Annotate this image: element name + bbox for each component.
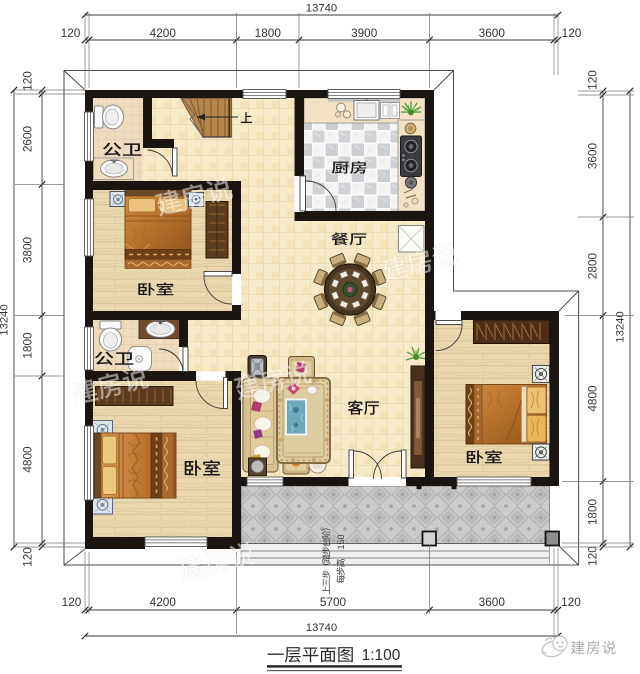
svg-text:120: 120 (21, 547, 35, 567)
svg-text:120: 120 (61, 26, 81, 40)
svg-text:1800: 1800 (21, 332, 35, 359)
svg-text:5700: 5700 (320, 595, 347, 609)
svg-text:4200: 4200 (150, 26, 177, 40)
svg-text:4200: 4200 (150, 595, 177, 609)
svg-text:120: 120 (561, 595, 581, 609)
svg-text:13740: 13740 (306, 622, 337, 634)
svg-text:1800: 1800 (255, 26, 282, 40)
svg-text:120: 120 (62, 595, 82, 609)
svg-text:4800: 4800 (21, 446, 35, 473)
svg-text:1:100: 1:100 (362, 647, 401, 664)
svg-text:3600: 3600 (479, 595, 506, 609)
svg-text:13740: 13740 (306, 3, 337, 15)
svg-text:13240: 13240 (615, 311, 627, 342)
svg-text:3600: 3600 (586, 142, 600, 169)
svg-text:3900: 3900 (351, 26, 378, 40)
svg-text:120: 120 (562, 26, 582, 40)
svg-text:2800: 2800 (586, 252, 600, 279)
svg-text:4800: 4800 (586, 385, 600, 412)
svg-text:120: 120 (586, 546, 600, 566)
svg-text:3600: 3600 (479, 26, 506, 40)
svg-text:120: 120 (586, 70, 600, 90)
svg-text:120: 120 (21, 71, 35, 91)
svg-text:3800: 3800 (21, 236, 35, 263)
svg-text:13240: 13240 (0, 304, 11, 335)
svg-text:1800: 1800 (586, 498, 600, 525)
svg-text:2600: 2600 (21, 125, 35, 152)
svg-text:150: 150 (336, 534, 346, 549)
